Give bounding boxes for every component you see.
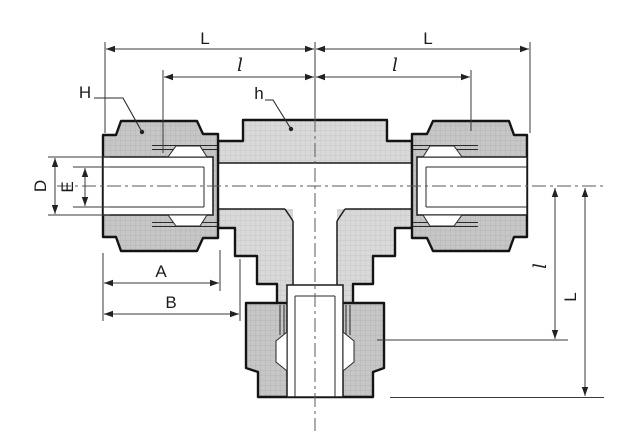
dimension-l-top-left: l bbox=[164, 55, 314, 80]
dim-label-h: h bbox=[254, 84, 263, 103]
dim-label-l-vertical: l bbox=[530, 263, 551, 269]
dimension-E: E bbox=[58, 168, 88, 206]
dimension-L-vertical: L bbox=[561, 188, 588, 396]
dim-label-l-top-left: l bbox=[237, 55, 243, 76]
dimension-L-top-right: L bbox=[316, 29, 529, 52]
leader-dot-H bbox=[140, 130, 144, 134]
dim-label-B: B bbox=[165, 293, 176, 312]
dim-label-H: H bbox=[79, 83, 91, 102]
dimension-l-top-right: l bbox=[316, 55, 470, 80]
dim-label-E: E bbox=[58, 181, 77, 192]
dimension-D: D bbox=[31, 158, 58, 214]
dim-label-L-top-left: L bbox=[200, 29, 209, 48]
dimension-L-top-left: L bbox=[106, 29, 314, 52]
dim-label-L-vertical: L bbox=[561, 292, 580, 301]
dim-label-L-top-right: L bbox=[423, 29, 432, 48]
dimension-B: B bbox=[104, 293, 239, 317]
dimension-A: A bbox=[104, 262, 219, 286]
leader-dot-h bbox=[289, 127, 293, 131]
tee-fitting-technical-drawing: L L l l bbox=[0, 0, 625, 438]
dim-label-D: D bbox=[31, 180, 50, 192]
dim-label-A: A bbox=[155, 262, 167, 281]
dimension-l-vertical: l bbox=[530, 188, 558, 339]
dim-label-l-top-right: l bbox=[392, 55, 398, 76]
drawing-page: L L l l bbox=[0, 0, 625, 438]
